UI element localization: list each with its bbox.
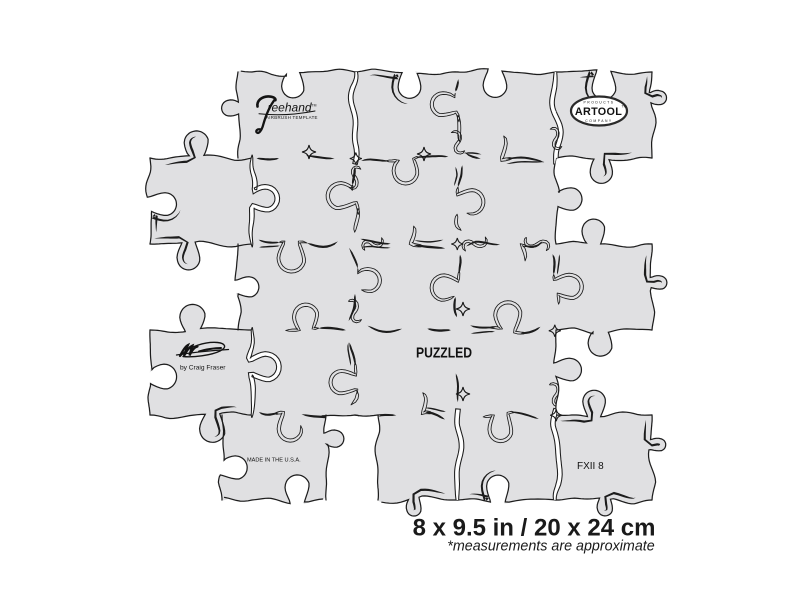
svg-text:8 x 9.5 in / 20 x 24 cm: 8 x 9.5 in / 20 x 24 cm	[413, 515, 656, 542]
svg-text:FXII 8: FXII 8	[577, 461, 604, 472]
svg-text:PRODUCTS: PRODUCTS	[583, 101, 614, 105]
svg-text:by Craig Fraser: by Craig Fraser	[180, 365, 226, 372]
svg-text:ARTOOL: ARTOOL	[575, 106, 622, 118]
svg-text:*measurements are approximate: *measurements are approximate	[447, 539, 654, 555]
svg-text:AIRBRUSH TEMPLATE: AIRBRUSH TEMPLATE	[266, 115, 318, 120]
svg-text:COMPANY: COMPANY	[585, 119, 612, 123]
svg-text:TM: TM	[312, 104, 317, 108]
svg-text:PUZZLED: PUZZLED	[416, 346, 472, 362]
svg-text:TM: TM	[622, 105, 627, 109]
svg-text:MADE IN THE U.S.A.: MADE IN THE U.S.A.	[247, 458, 301, 464]
